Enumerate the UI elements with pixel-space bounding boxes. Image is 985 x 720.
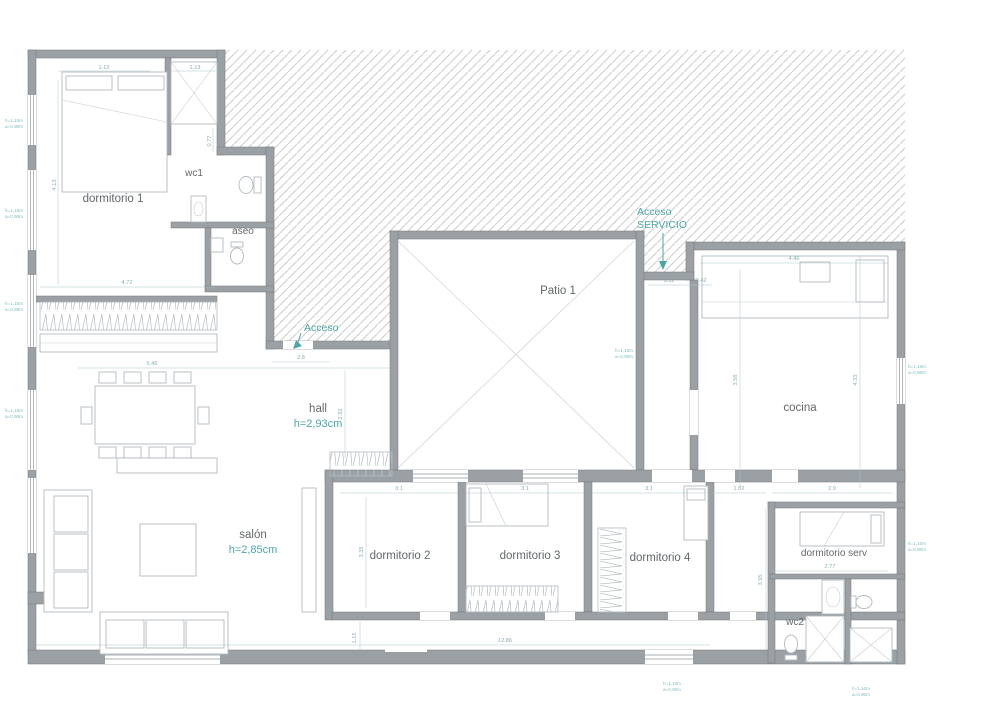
- coffee-table: [140, 524, 196, 576]
- dim-text: 4.72: [122, 280, 133, 286]
- toilet-bath-2: [851, 596, 872, 609]
- dim-text: 4.46: [789, 256, 800, 262]
- room-label-aseo: aseo: [232, 226, 254, 237]
- window-note: h=1,10m: [615, 348, 633, 353]
- exterior-hatch-region: [225, 50, 905, 349]
- sofa-bottom: [100, 612, 228, 654]
- bed-dormitorio-1: [62, 72, 167, 192]
- window-note: h=1,10m: [5, 208, 23, 213]
- dim-text: 1.13: [190, 65, 201, 71]
- window-note: h=1,10m: [5, 408, 23, 413]
- sideboard: [117, 458, 217, 473]
- shower-bath-2: [850, 628, 892, 662]
- closet-hall: [330, 452, 392, 476]
- acceso-label: Acceso: [304, 322, 339, 334]
- room-label-dormitorio-3: dormitorio 3: [500, 550, 561, 562]
- room-label-dormitorio-2: dormitorio 2: [370, 550, 431, 562]
- window-left-5: [28, 478, 36, 553]
- dim-text: 1.15: [352, 633, 358, 644]
- shower-wc2: [806, 616, 844, 662]
- dim-text: 3.1: [645, 486, 653, 492]
- room-label-dormitorio-4: dormitorio 4: [630, 552, 691, 564]
- dim-text: 4.13: [52, 180, 58, 191]
- window-left-3: [28, 275, 36, 347]
- dim-text: 3.1: [395, 486, 403, 492]
- bed-dormitorio-4: [684, 486, 708, 540]
- dim-text: 1.02: [734, 486, 745, 492]
- tv-unit: [302, 488, 316, 612]
- dim-text: 2.8: [297, 355, 305, 361]
- room-label-dormitorio-serv: dormitorio serv: [801, 548, 867, 559]
- window-note: a=0,90m: [908, 370, 926, 375]
- room-label-cocina: cocina: [783, 402, 817, 414]
- acceso-servicio-label-line2: SERVICIO: [637, 219, 687, 231]
- window-patio-1: [413, 470, 468, 482]
- corridor-opening-1: [652, 470, 692, 482]
- room-label-wc2: wc2: [785, 617, 804, 628]
- window-note: h=1,10m: [5, 301, 23, 306]
- window-left-2: [28, 170, 36, 250]
- window-note: a=0,90m: [908, 547, 926, 552]
- window-right-1: [897, 358, 905, 404]
- window-note: h=1,10m: [908, 364, 926, 369]
- dim-text: 0.77: [207, 136, 213, 147]
- window-note: a=0,90m: [852, 692, 870, 697]
- window-note: a=0,90m: [663, 687, 681, 692]
- sink-aseo: [211, 238, 223, 252]
- sofa-left: [44, 490, 92, 612]
- dim-text: 2.9: [828, 486, 836, 492]
- dim-text: 2.77: [825, 564, 836, 570]
- closet-dormitorio-4: [598, 528, 626, 612]
- sink-wc2: [822, 580, 844, 614]
- dim-text: 3.35: [359, 547, 365, 558]
- room-label-wc1: wc1: [184, 168, 203, 179]
- window-bottom-2: [645, 650, 693, 664]
- floor-plan-canvas: 1.12 1.13 4.13 0.77 4.72 5.46 2.8 2.92 3…: [0, 0, 985, 720]
- toilet-wc1: [239, 177, 261, 194]
- acceso-servicio-label-line1: Acceso: [637, 206, 672, 218]
- closet-dormitorio-3: [466, 586, 558, 612]
- dim-text: 3.58: [733, 375, 739, 386]
- door-dormitorio-2: [420, 612, 450, 620]
- toilet-aseo: [231, 242, 244, 264]
- corridor-opening-2: [705, 470, 735, 482]
- bed-dormitorio-3: [466, 484, 548, 526]
- dim-text: 3.95: [758, 575, 764, 586]
- hatch-polygon: [225, 50, 905, 349]
- window-note: a=0,90m: [615, 354, 633, 359]
- window-left-1: [28, 95, 36, 145]
- kitchen-door-opening: [690, 390, 698, 435]
- wardrobe-dormitorio-1: [40, 302, 217, 352]
- dim-text: 12.86: [498, 638, 512, 644]
- door-dormitorio-3: [545, 612, 575, 620]
- patio-cross: [398, 241, 634, 468]
- door-passage: [730, 612, 756, 620]
- closet-wc1: [171, 62, 217, 124]
- dim-text: 3.11: [664, 278, 674, 284]
- window-note: a=0,90m: [5, 124, 23, 129]
- room-height-hall: h=2,93cm: [294, 418, 343, 430]
- dim-text: 4.33: [853, 375, 859, 386]
- dim-text: 0.42: [696, 278, 707, 284]
- window-note: a=0,90m: [5, 414, 23, 419]
- corridor-opening-3: [772, 470, 798, 482]
- window-note: h=1,10m: [663, 681, 681, 686]
- sink-wc1: [191, 196, 206, 222]
- window-note: h=1,10m: [852, 686, 870, 691]
- room-label-patio-1: Patio 1: [540, 285, 576, 297]
- bed-dormitorio-serv: [800, 512, 884, 546]
- window-note: h=1,10m: [908, 541, 926, 546]
- dim-text: 5.46: [147, 361, 158, 367]
- window-note: a=0,90m: [5, 307, 23, 312]
- door-dormitorio-4: [668, 612, 698, 620]
- dining-table: [81, 372, 209, 458]
- room-height-salon: h=2,85cm: [229, 544, 278, 556]
- room-label-salon: salón: [239, 529, 267, 541]
- window-patio-2: [523, 470, 578, 482]
- dim-text: 1.12: [99, 65, 110, 71]
- room-label-hall: hall: [309, 403, 327, 415]
- window-note: a=0,90m: [5, 214, 23, 219]
- room-label-dormitorio-1: dormitorio 1: [83, 193, 144, 205]
- toilet-wc2: [785, 635, 798, 660]
- window-left-4: [28, 390, 36, 470]
- window-note: h=1,10m: [5, 118, 23, 123]
- dim-text: 3.1: [521, 486, 529, 492]
